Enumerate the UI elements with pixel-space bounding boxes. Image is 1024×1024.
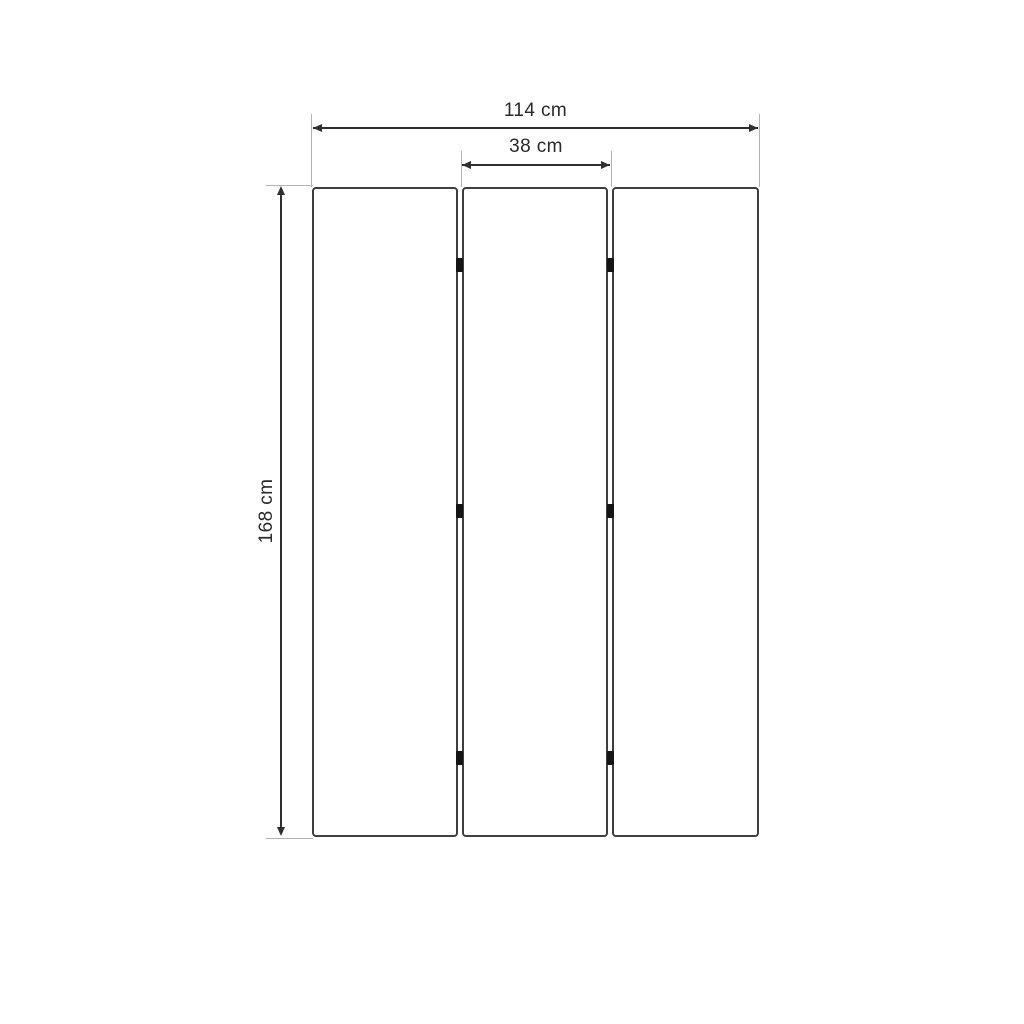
extension-line-panel-width-right — [611, 151, 612, 187]
hinge-right-gap-top — [607, 258, 614, 272]
dimension-label-panel-width: 38 cm — [462, 136, 610, 158]
arrowhead-left-icon — [462, 161, 471, 169]
hinge-right-gap-bottom — [607, 751, 614, 765]
arrowhead-right-icon — [601, 161, 610, 169]
hinge-left-gap-middle — [456, 504, 463, 518]
screen-panel-right — [612, 187, 759, 837]
dimension-line-height — [280, 188, 282, 832]
screen-panel-middle — [462, 187, 608, 837]
hinge-right-gap-middle — [607, 504, 614, 518]
dimension-label-height: 168 cm — [256, 479, 278, 544]
arrowhead-left-icon — [313, 124, 322, 132]
dimension-line-panel-width — [462, 164, 610, 166]
folding-screen-technical-drawing: 114 cm 38 cm 168 cm — [0, 0, 1024, 1024]
hinge-left-gap-top — [456, 258, 463, 272]
extension-line-total-width-left — [311, 114, 312, 187]
extension-line-height-bottom — [266, 838, 313, 839]
arrowhead-right-icon — [749, 124, 758, 132]
screen-panel-left — [312, 187, 458, 837]
dimension-line-total-width — [313, 127, 758, 129]
hinge-left-gap-bottom — [456, 751, 463, 765]
dimension-label-total-width: 114 cm — [313, 100, 758, 122]
extension-line-total-width-right — [759, 114, 760, 187]
extension-line-height-top — [266, 185, 313, 186]
arrowhead-down-icon — [277, 827, 285, 836]
arrowhead-up-icon — [277, 186, 285, 195]
